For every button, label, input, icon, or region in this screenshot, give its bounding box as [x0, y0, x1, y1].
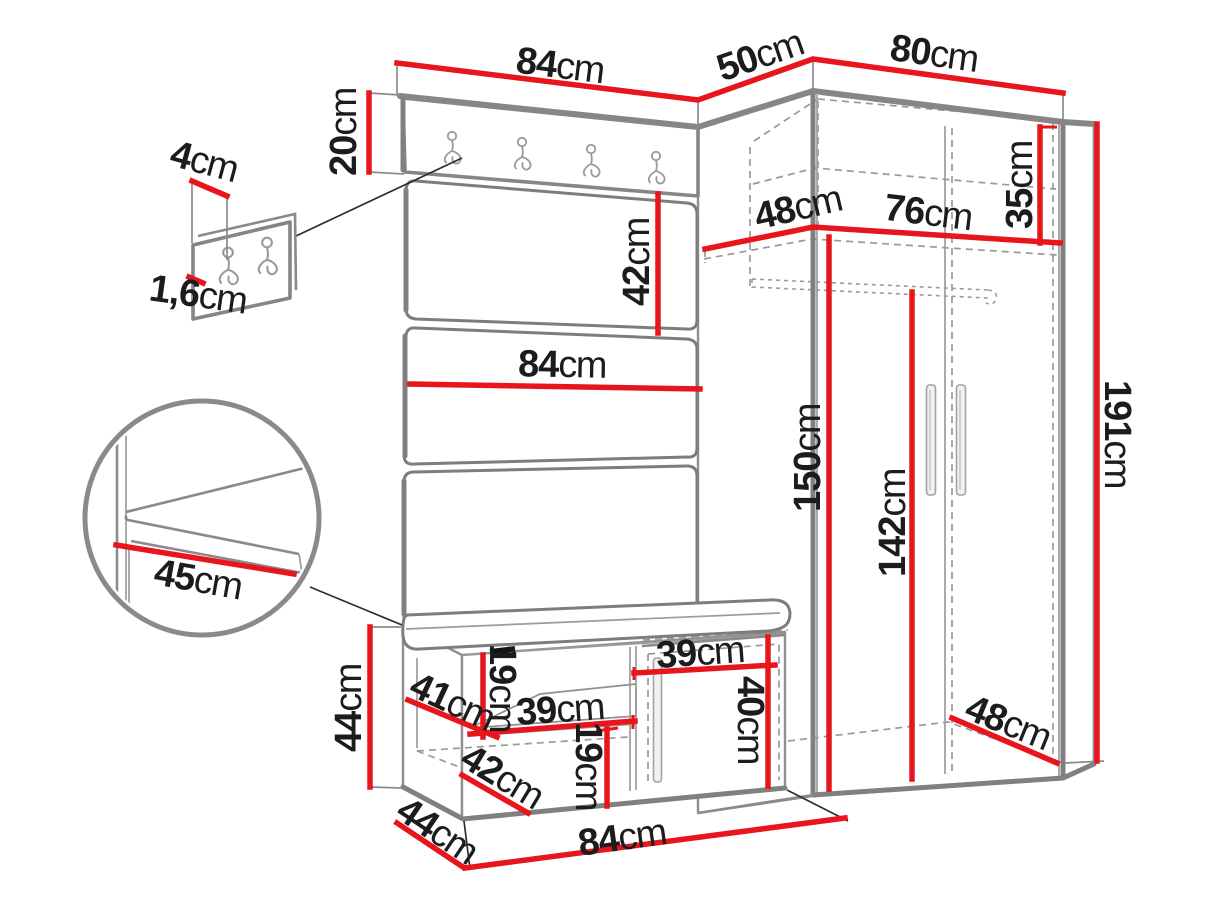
dim-label-bench-door-height: 40cm — [729, 676, 771, 764]
dim-label-bench-width: 84cm — [576, 811, 669, 865]
dim-label-panel-width: 84cm — [518, 343, 607, 387]
dim-label-interior-height-right: 142cm — [872, 469, 914, 577]
dim-label-interior-height-left: 150cm — [787, 404, 829, 512]
dim-label-bench-lower-gap: 19cm — [567, 722, 609, 810]
panel-cushion — [404, 466, 697, 624]
wardrobe-side-face — [1063, 122, 1094, 779]
dim-label-hook-board-height: 20cm — [323, 88, 365, 176]
dim-label-panel-top-width: 84cm — [514, 40, 606, 92]
door-handle-bar-icon — [957, 385, 966, 495]
dim-label-top-section-height: 35cm — [999, 141, 1041, 229]
dim-label-wardrobe-height: 191cm — [1096, 380, 1138, 488]
dim-label-panel-section-height: 42cm — [616, 218, 658, 306]
dim-label-bench-height: 44cm — [328, 664, 370, 752]
dim-label-bench-door-width: 39cm — [655, 629, 746, 677]
door-handle-bar-icon — [927, 385, 936, 495]
diagram-canvas: 84cm 50cm 80cm 20cm 4cm 1,6cm 42cm 48cm … — [0, 0, 1214, 911]
furniture-dimension-diagram: 84cm 50cm 80cm 20cm 4cm 1,6cm 42cm 48cm … — [0, 0, 1214, 911]
dim-label-hook-width: 4cm — [166, 133, 242, 191]
